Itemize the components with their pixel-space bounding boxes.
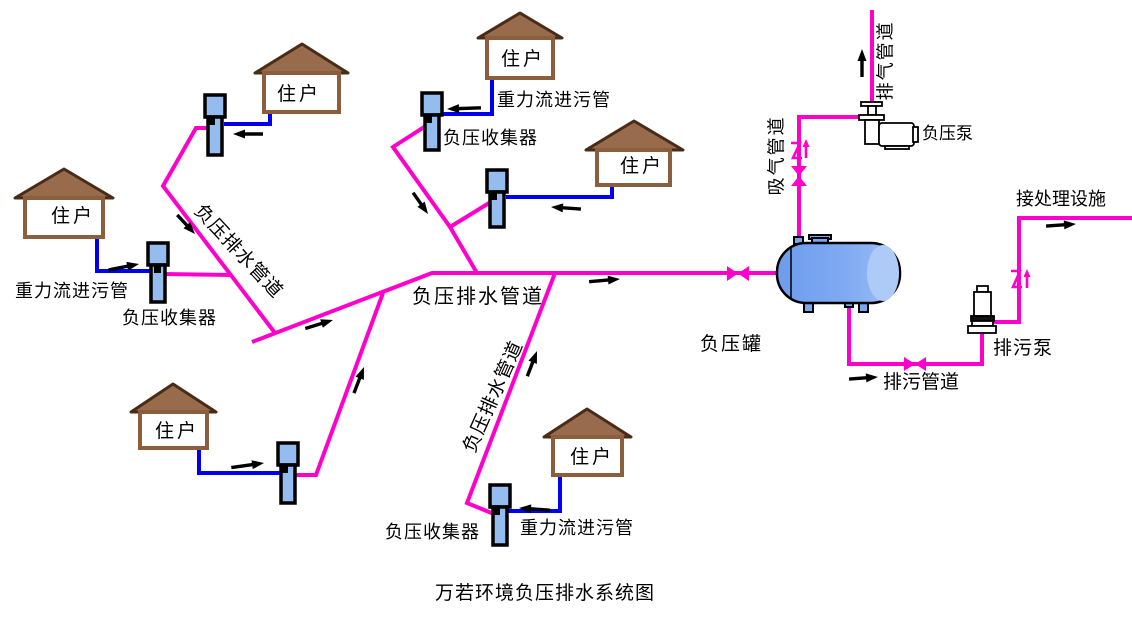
- house-roof: [131, 384, 216, 412]
- house-roof: [544, 409, 631, 437]
- gravity-pipe-5: [199, 448, 280, 473]
- house-label-4: 住户: [620, 156, 664, 178]
- gate-valve-sewage: [904, 357, 926, 371]
- tank-end-cap: [867, 245, 899, 301]
- vacuum-collector-4: [487, 170, 507, 227]
- vacuum-collector-2: [148, 243, 168, 302]
- vacuum-collector-6: [490, 485, 510, 545]
- gate-valve-suction: [791, 166, 807, 186]
- sewage-pump-symbol: [968, 286, 996, 333]
- vacuum-lateral-collector2: [162, 274, 232, 275]
- gravity-pipe-label-3: 重力流进污管: [520, 519, 634, 540]
- house-label-5: 住户: [155, 421, 199, 443]
- vacuum-pump-symbol: [859, 102, 918, 149]
- house-roof: [15, 169, 113, 198]
- exhaust-pipe-label: 排气管道: [877, 18, 898, 102]
- sewage-pipe-label: 排污管道: [883, 372, 959, 394]
- house-label-2: 住户: [51, 206, 95, 228]
- vacuum-drainage-system-diagram: 住户 住户 住户 住户 住户 住户 重力流进污管 重力流进污管 重力流进污管 负…: [0, 0, 1132, 624]
- diagram-title: 万若环境负压排水系统图: [435, 583, 655, 605]
- gate-valve-main: [727, 266, 749, 281]
- vacuum-collector-1: [205, 95, 225, 155]
- flow-arrow: [447, 103, 481, 113]
- house-roof: [255, 44, 348, 73]
- vacuum-pump-label: 负压泵: [922, 125, 973, 145]
- vacuum-collector-5: [278, 443, 298, 503]
- flow-arrow: [233, 130, 263, 139]
- house-label-1: 住户: [277, 84, 321, 106]
- collector-label-1: 负压收集器: [122, 309, 217, 330]
- vacuum-tank-label: 负压罐: [700, 334, 763, 356]
- vacuum-tank: [777, 235, 900, 312]
- flow-arrow: [551, 203, 582, 214]
- sewage-pipe-line: [849, 305, 982, 364]
- gravity-pipe-label-2: 重力流进污管: [497, 91, 611, 112]
- suction-pipe-label: 吸气管道: [768, 113, 789, 197]
- suction-pipe-line: [799, 117, 866, 243]
- flow-arrow: [858, 49, 867, 77]
- vacuum-main-label: 负压排水管道: [412, 285, 544, 308]
- house-label-3: 住户: [501, 49, 545, 71]
- gravity-pipe-6: [508, 475, 560, 511]
- gravity-pipe-label-1: 重力流进污管: [15, 282, 129, 303]
- sewage-pump-label: 排污泵: [993, 338, 1053, 360]
- house-roof: [478, 13, 562, 38]
- flow-arrow: [589, 275, 621, 287]
- vacuum-lateral-collector4: [450, 200, 494, 227]
- flow-arrow: [1046, 220, 1077, 231]
- collector-label-2: 负压收集器: [443, 129, 538, 150]
- to-treatment-label: 接处理设施: [1016, 190, 1106, 211]
- house-roof: [586, 121, 683, 150]
- house-label-6: 住户: [570, 447, 614, 469]
- flow-arrow: [231, 459, 265, 473]
- flow-arrow: [849, 373, 879, 384]
- collector-label-3: 负压收集器: [385, 523, 480, 544]
- vacuum-branch-bottommiddle: [467, 273, 555, 514]
- vacuum-collector-3: [422, 93, 442, 150]
